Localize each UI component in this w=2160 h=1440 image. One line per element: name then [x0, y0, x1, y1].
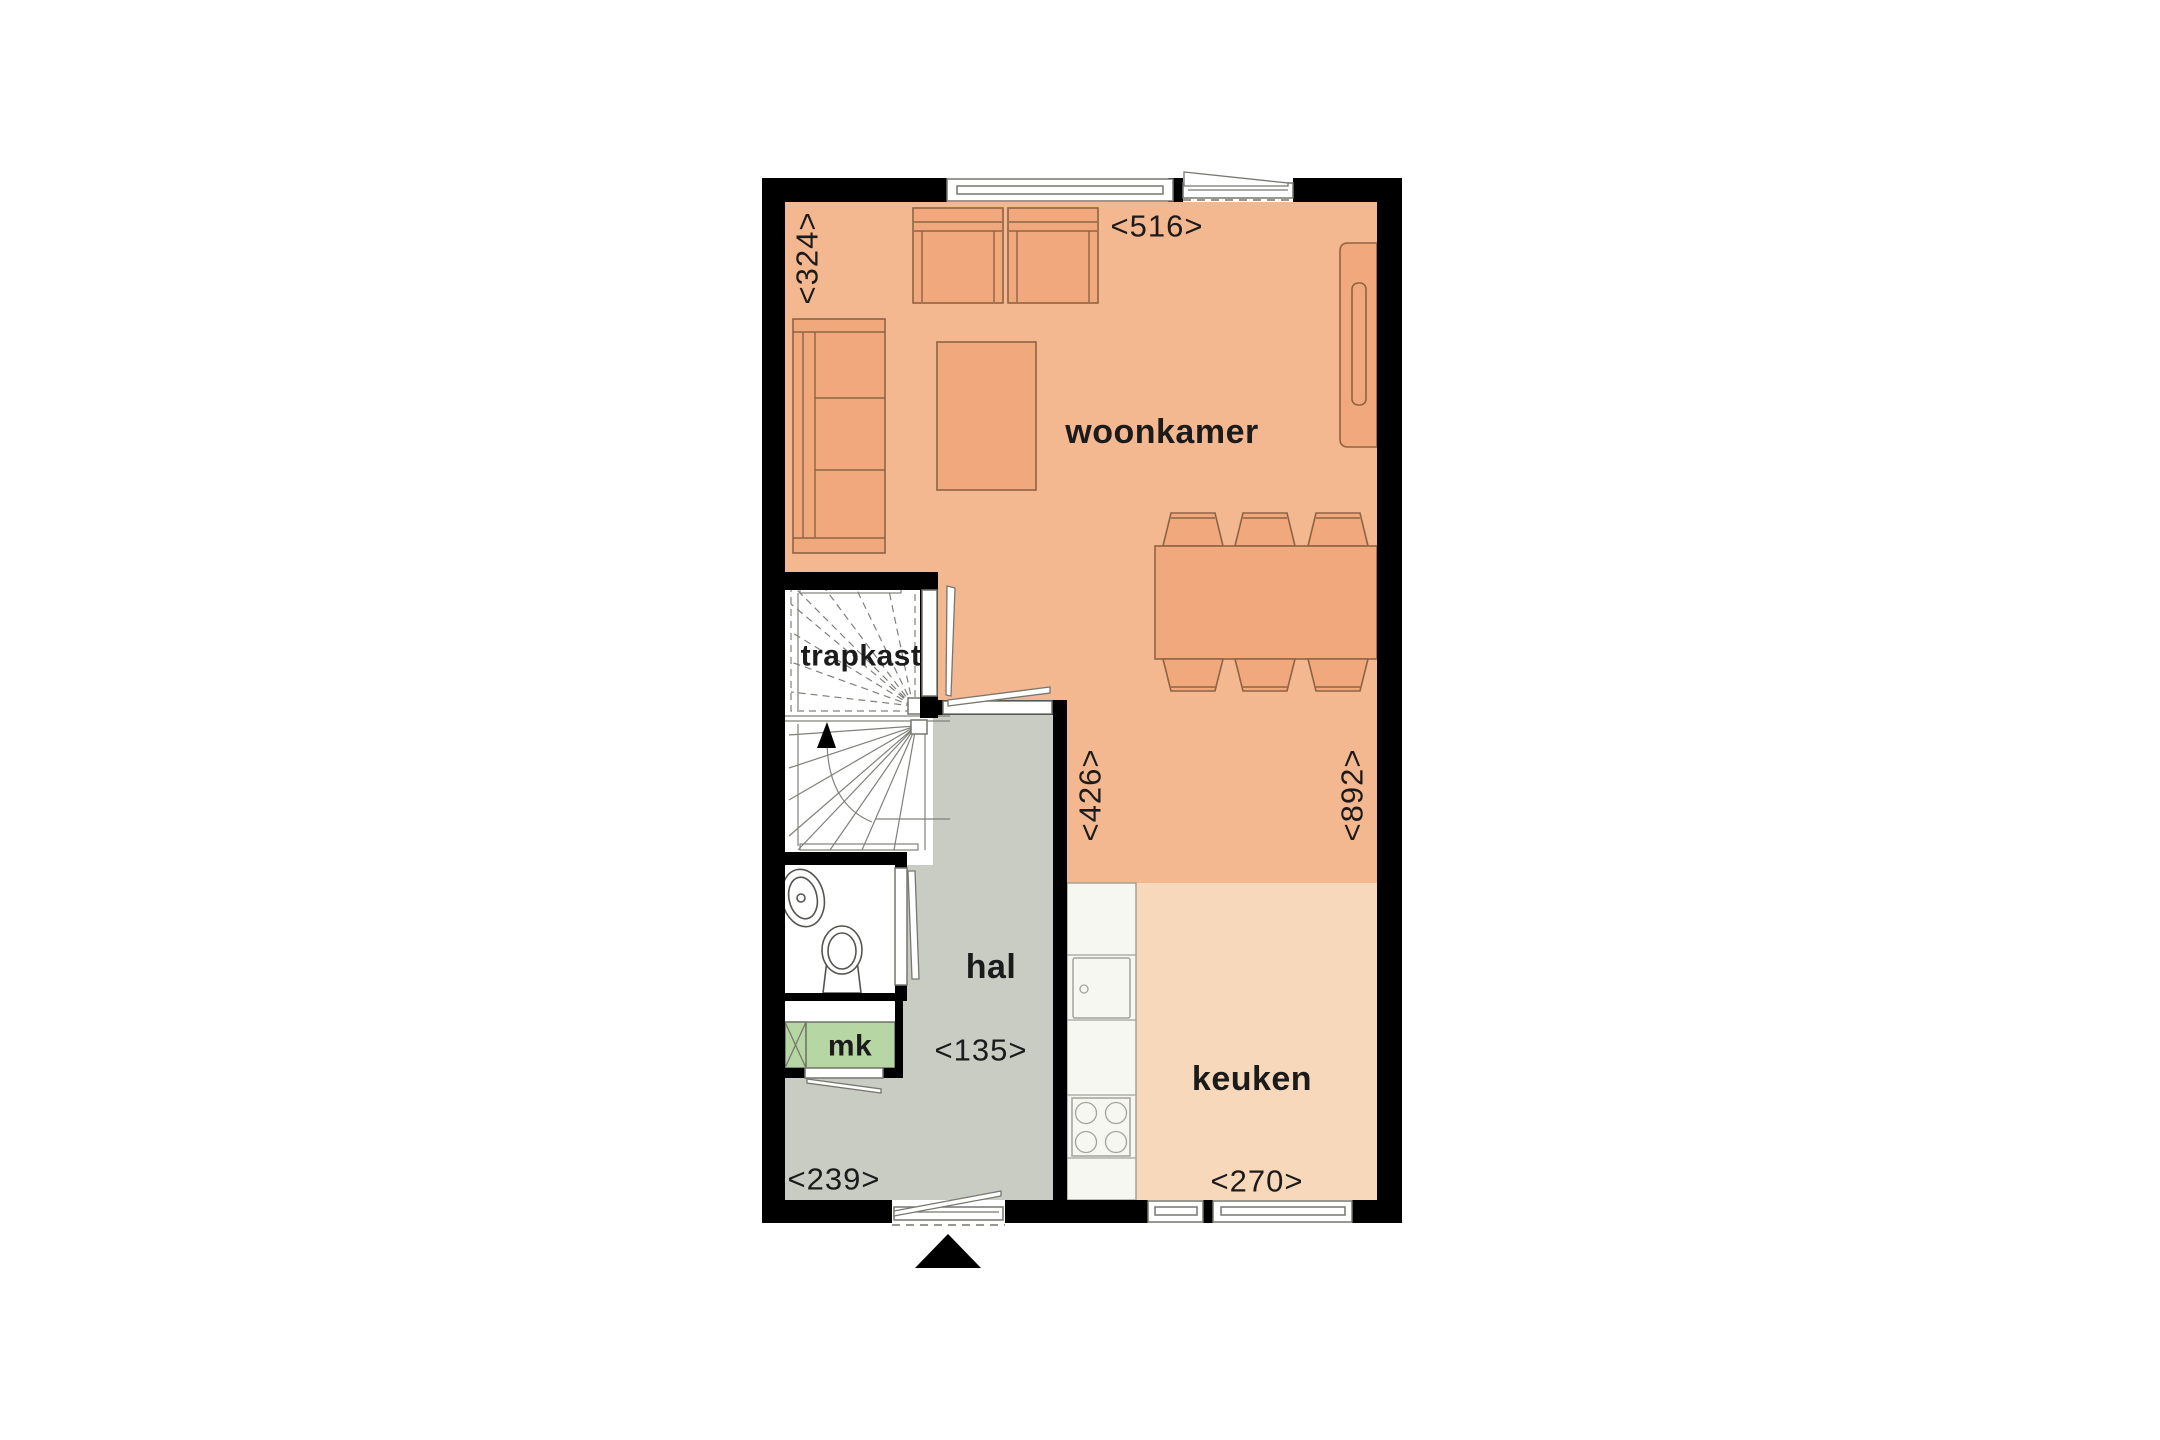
- stair-newel-post-2: [911, 720, 927, 734]
- dining-set: [1155, 513, 1377, 691]
- woonkamer-label: woonkamer: [1064, 413, 1258, 451]
- floorplan-drawing: woonkamer trapkast hal keuken mk <324> <…: [0, 0, 2160, 1440]
- wall-bottom-left: [762, 1200, 892, 1223]
- dimension-426: <426>: [1073, 749, 1108, 842]
- toilet-icon: [822, 926, 862, 993]
- stairs-hal-opening: [905, 852, 933, 865]
- mk-label: mk: [828, 1030, 872, 1063]
- armchair-2: [1008, 208, 1098, 303]
- wall-bottom-mid: [1005, 1200, 1148, 1223]
- wall-bottom-right: [1352, 1200, 1402, 1223]
- cooktop-icon: [1072, 1098, 1130, 1156]
- kitchen-counter: [1067, 883, 1136, 1200]
- dining-chairs-bottom: [1163, 659, 1368, 691]
- dimension-892: <892>: [1335, 749, 1370, 842]
- window-bottom-large: [1213, 1201, 1352, 1222]
- window-tilt-flap: [1184, 172, 1288, 186]
- tv-cabinet: [1340, 243, 1377, 447]
- wall-mk-right: [895, 1001, 903, 1078]
- entrance-arrow-icon: [915, 1234, 981, 1268]
- dimension-135: <135>: [935, 1033, 1028, 1068]
- trapkast-label: trapkast: [801, 640, 922, 673]
- window-top-fixed: [947, 179, 1173, 201]
- wall-top-left: [762, 178, 947, 202]
- window-bottom-small: [1148, 1201, 1203, 1222]
- wall-toilet-bottom: [783, 993, 895, 1001]
- duct-space: [785, 1001, 895, 1022]
- hal-label: hal: [966, 948, 1017, 986]
- wall-trapkast-top: [785, 572, 938, 590]
- kitchen-sink-icon: [1073, 958, 1130, 1018]
- sofa: [793, 319, 885, 553]
- sink-drain: [797, 894, 805, 902]
- toilet-door: [895, 868, 919, 985]
- window-top-tilting: [1183, 172, 1293, 200]
- dining-chairs-top: [1163, 513, 1368, 546]
- dimension-270: <270>: [1211, 1164, 1304, 1199]
- dimension-324: <324>: [790, 212, 825, 305]
- dimension-239: <239>: [788, 1162, 881, 1197]
- wall-toilet-top: [783, 852, 907, 865]
- keuken-label: keuken: [1192, 1060, 1312, 1098]
- wall-left: [762, 178, 785, 1223]
- floorplan-canvas: woonkamer trapkast hal keuken mk <324> <…: [0, 0, 2160, 1440]
- coffee-table: [937, 342, 1036, 490]
- wall-hal-keuken-partition: [1053, 700, 1067, 1200]
- dining-table: [1155, 546, 1377, 659]
- wall-bottom-pier: [1203, 1200, 1213, 1223]
- dimension-516: <516>: [1111, 209, 1204, 244]
- armchair-1: [913, 208, 1003, 303]
- wall-right: [1377, 178, 1402, 1223]
